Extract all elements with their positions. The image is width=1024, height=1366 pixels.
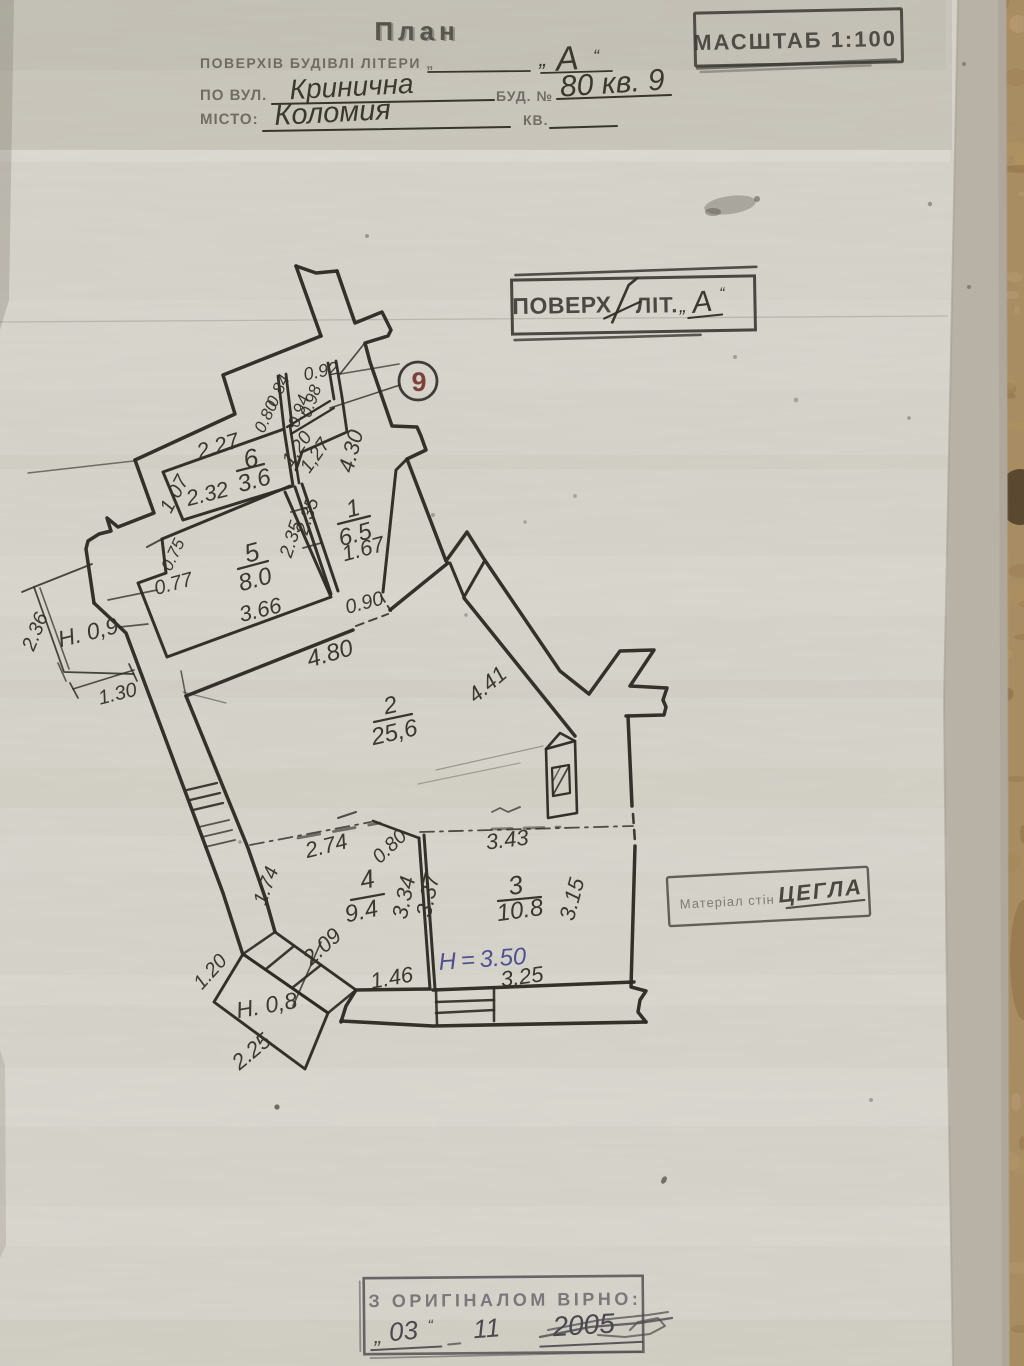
- svg-text:11: 11: [472, 1312, 501, 1344]
- svg-text:МІСТО:: МІСТО:: [200, 111, 259, 128]
- svg-text:9: 9: [411, 367, 426, 397]
- svg-text:Коломия: Коломия: [273, 94, 391, 132]
- svg-text:БУД. №: БУД. №: [496, 88, 553, 104]
- svg-text:КВ.: КВ.: [523, 112, 549, 128]
- svg-text:„: „: [373, 1323, 382, 1348]
- svg-text:МАСШТАБ 1:100: МАСШТАБ 1:100: [693, 26, 897, 55]
- svg-text:3.43: 3.43: [484, 824, 530, 854]
- svg-text:“: “: [593, 46, 600, 66]
- svg-text:„: „: [679, 295, 687, 317]
- svg-text:План: План: [376, 17, 461, 47]
- svg-text:ЛІТ.: ЛІТ.: [635, 292, 678, 318]
- svg-text:03: 03: [388, 1315, 420, 1348]
- svg-text:ПОВЕРХ: ПОВЕРХ: [512, 291, 612, 319]
- svg-text:ПО ВУЛ.: ПО ВУЛ.: [200, 87, 267, 104]
- svg-text:„: „: [538, 46, 546, 71]
